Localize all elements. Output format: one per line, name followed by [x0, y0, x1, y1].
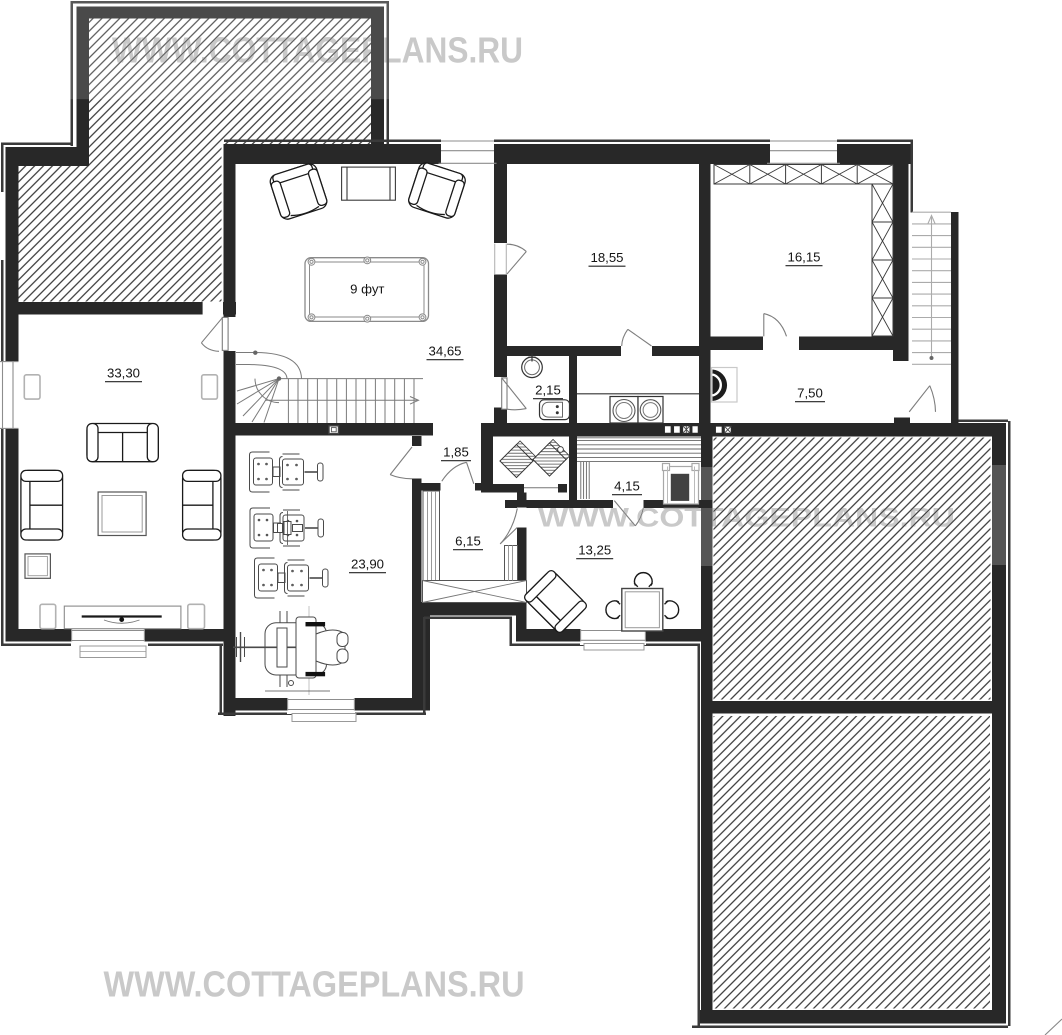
svg-text:33,30: 33,30 [107, 366, 140, 381]
svg-text:WWW.COTTAGEPLANS.RU: WWW.COTTAGEPLANS.RU [538, 503, 955, 533]
svg-text:18,55: 18,55 [590, 250, 623, 265]
svg-text:2,15: 2,15 [535, 383, 561, 398]
svg-text:6,15: 6,15 [455, 534, 481, 549]
svg-text:16,15: 16,15 [787, 250, 820, 265]
svg-text:9 фут: 9 фут [350, 282, 384, 297]
svg-text:23,90: 23,90 [351, 557, 384, 572]
svg-text:7,50: 7,50 [797, 386, 823, 401]
svg-text:13,25: 13,25 [578, 543, 611, 558]
svg-text:4,15: 4,15 [614, 479, 640, 494]
svg-text:34,65: 34,65 [428, 344, 461, 359]
svg-text:WWW.COTTAGEPLANS.RU: WWW.COTTAGEPLANS.RU [104, 964, 525, 1005]
svg-text:1,85: 1,85 [443, 445, 469, 460]
svg-text:WWW.COTTAGEPLANS.RU: WWW.COTTAGEPLANS.RU [112, 29, 523, 70]
